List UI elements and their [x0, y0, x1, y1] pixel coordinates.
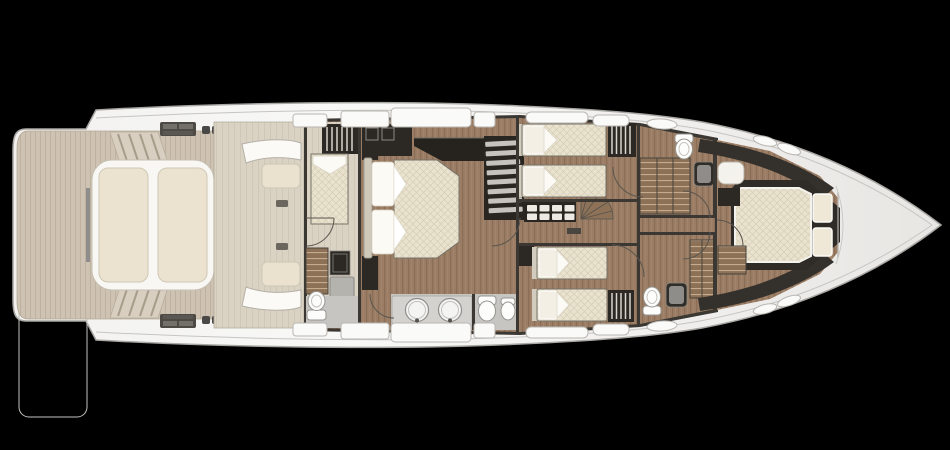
bed-headboard: [532, 247, 537, 279]
shower-grate: [640, 158, 690, 214]
sink-icon: [666, 283, 687, 307]
floor-plan-canvas: [0, 0, 950, 450]
hull-window: [293, 323, 327, 336]
hull-window: [526, 327, 588, 338]
hull-window: [593, 115, 629, 126]
hull-window: [341, 323, 389, 339]
sink-icon: [439, 299, 462, 323]
nightstand-bottom: [362, 256, 378, 274]
master-pillow-top: [372, 162, 394, 206]
sunpad-cushion-left: [99, 168, 148, 282]
bed-headboard: [532, 289, 537, 321]
sunpad-cushion-right: [158, 168, 207, 282]
vip-pillow: [813, 194, 832, 222]
transom-garage: [214, 122, 304, 328]
vip-steps: [718, 246, 746, 274]
hull-window: [391, 108, 471, 127]
hull-window: [341, 111, 389, 127]
toilet-icon: [478, 296, 496, 321]
tv-cabinet: [518, 246, 534, 266]
hull-window: [391, 323, 471, 342]
corridor-fitting: [567, 228, 581, 234]
deck-fitting: [276, 200, 288, 207]
hull-window: [293, 114, 327, 127]
crew-cabin: [306, 122, 359, 328]
toilet-icon: [675, 134, 693, 159]
hull-window: [593, 324, 629, 335]
sink-icon: [406, 299, 429, 323]
toilet-icon: [643, 287, 661, 315]
crew-steps: [306, 248, 328, 294]
vip-cabinet: [718, 188, 740, 206]
headboard: [364, 158, 372, 258]
pillow: [524, 126, 544, 154]
vip-pillow: [813, 228, 832, 256]
master-pillow-bottom: [372, 210, 394, 254]
bench-seat-top: [262, 164, 300, 188]
toilet-icon: [307, 292, 326, 321]
yacht-floor-plan: [0, 0, 950, 450]
pillow: [539, 249, 557, 277]
pillow: [524, 167, 544, 195]
master-chest: [362, 274, 378, 290]
bench-seat-bottom: [262, 262, 300, 286]
pillow: [539, 291, 557, 319]
sink-icon: [694, 162, 714, 186]
hull-window: [474, 112, 495, 127]
hull-window: [474, 323, 495, 338]
hull-window: [526, 112, 588, 123]
bidet-icon: [501, 298, 515, 320]
shelf-unit: [524, 202, 576, 222]
deck-fitting: [276, 243, 288, 250]
vip-bench: [718, 162, 744, 184]
master-bed: [394, 160, 459, 258]
